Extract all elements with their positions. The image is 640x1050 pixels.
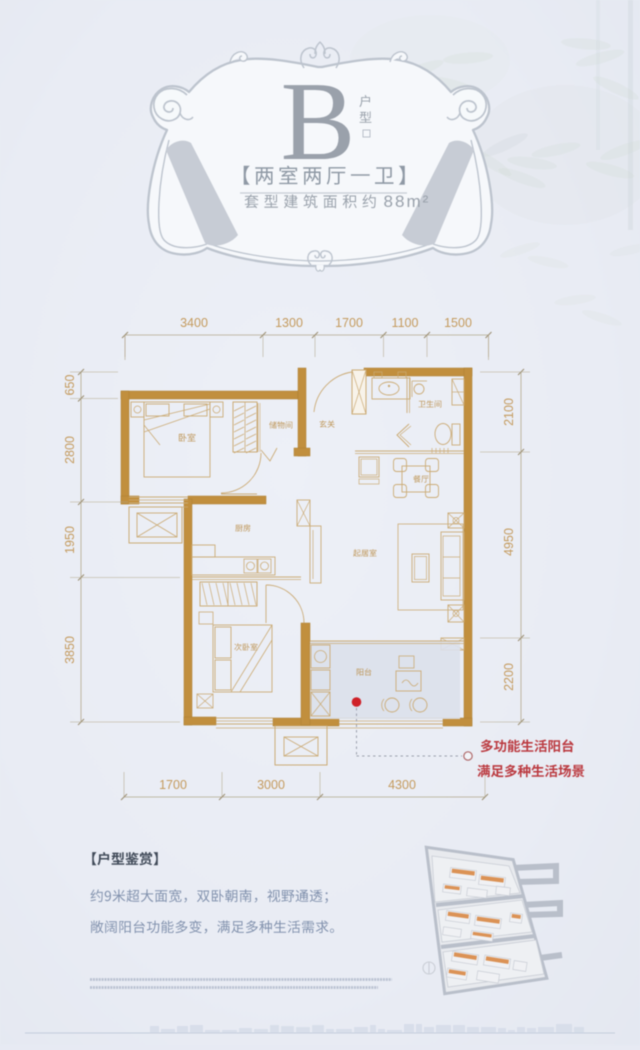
svg-text:650: 650 (63, 375, 77, 396)
svg-text:1700: 1700 (159, 778, 187, 792)
svg-text:2100: 2100 (502, 398, 516, 426)
svg-text:2800: 2800 (63, 436, 77, 464)
svg-text:1100: 1100 (392, 316, 419, 330)
svg-text:3000: 3000 (257, 778, 285, 792)
svg-text:1950: 1950 (63, 526, 77, 554)
svg-text:1700: 1700 (335, 316, 363, 330)
svg-text:88m²: 88m² (384, 192, 431, 211)
svg-text:3400: 3400 (180, 316, 208, 330)
svg-text:B: B (281, 60, 356, 184)
svg-text:3850: 3850 (63, 636, 77, 664)
svg-text:1300: 1300 (275, 316, 303, 330)
svg-text:2200: 2200 (502, 663, 516, 691)
svg-text:4950: 4950 (502, 528, 516, 556)
svg-text:4300: 4300 (388, 778, 416, 792)
svg-text:1500: 1500 (444, 316, 472, 330)
